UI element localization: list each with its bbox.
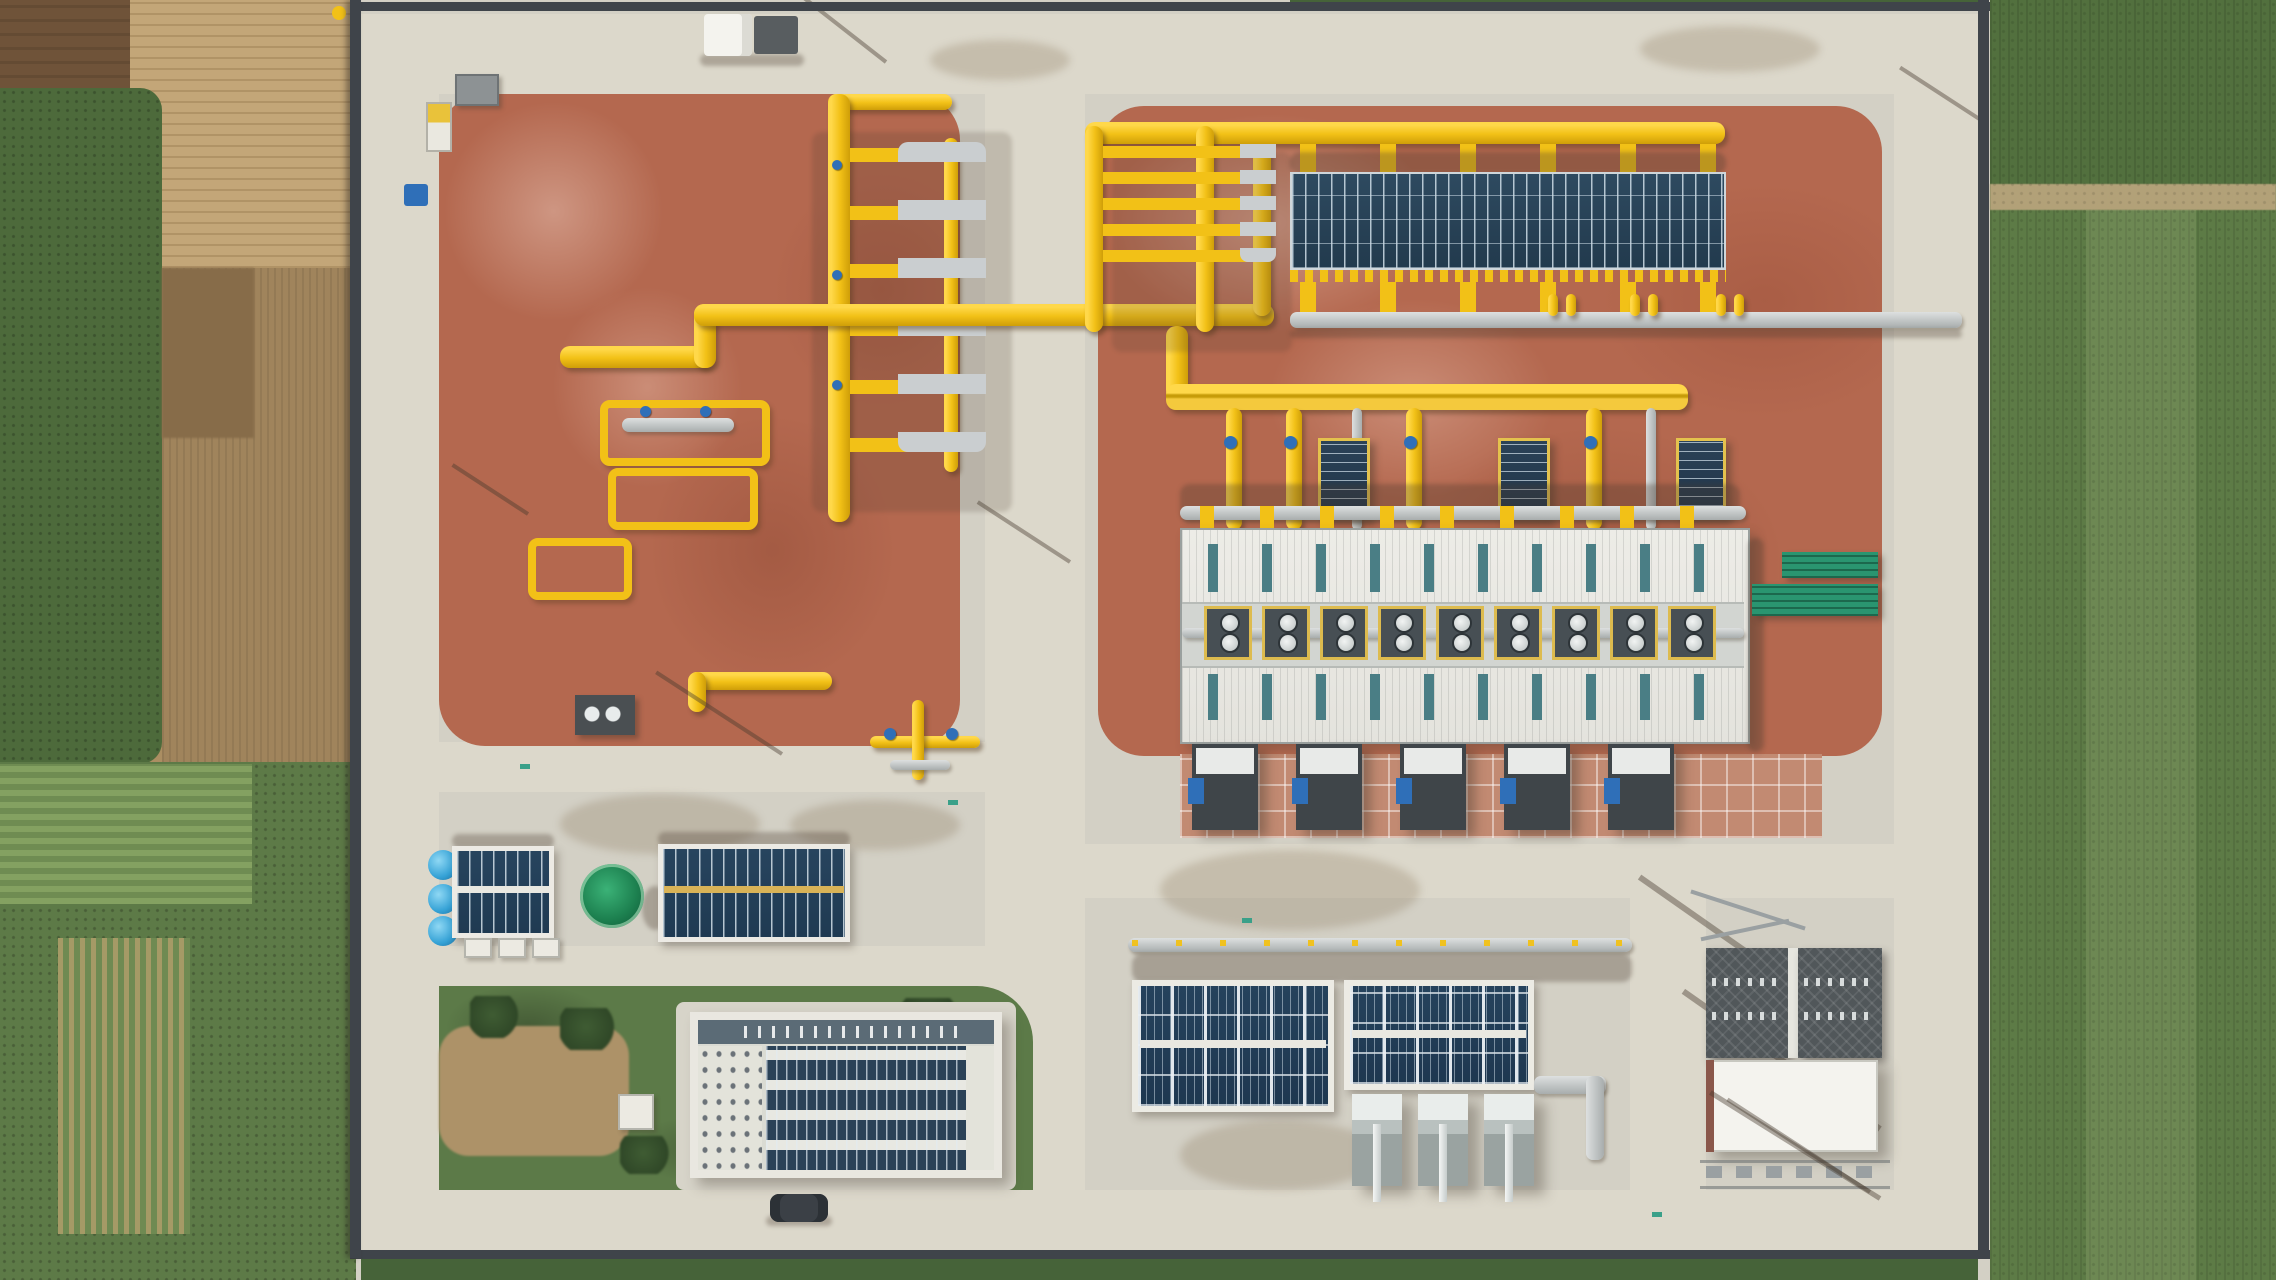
cooler-skid (1400, 744, 1466, 830)
valve (1584, 436, 1597, 449)
white-truck (704, 14, 752, 56)
crop-texture-overlay (1990, 0, 2276, 1280)
wall-south (350, 1250, 1990, 1259)
valve (946, 728, 958, 740)
duct-vertical (1586, 1076, 1604, 1160)
valve (832, 270, 842, 280)
roof-vent-unit (1320, 606, 1368, 660)
cooling-unit-row (1752, 584, 1878, 616)
solar-roof-building-long (658, 844, 850, 942)
ground-stain (1160, 850, 1420, 930)
parked-car (770, 1194, 828, 1222)
road-lower-vertical (1630, 898, 1706, 1190)
expansion-loop (1566, 294, 1576, 316)
compressor-unit (1352, 1094, 1402, 1186)
cooler-skid (1504, 744, 1570, 830)
bay-divider-wall (1788, 948, 1798, 1058)
tree (560, 1008, 618, 1050)
farmland-east (1990, 0, 2276, 1280)
expansion-loop (1548, 294, 1558, 316)
admin-roof-solar-rows (766, 1046, 966, 1170)
wall-east (1978, 0, 1989, 1258)
bushing-row (1804, 978, 1874, 986)
ground-stain (930, 40, 1070, 80)
pipe-skid-frame (528, 538, 632, 600)
wall-west (350, 0, 361, 1258)
site-container (426, 102, 452, 152)
roof-vent-unit (1494, 606, 1542, 660)
compressor-unit (1418, 1094, 1468, 1186)
solar-canopy (1290, 172, 1726, 270)
pipe-rack-valve-markers (1132, 940, 1628, 946)
road-east-perimeter (1894, 14, 1978, 1257)
equipment-cabinet (455, 74, 499, 106)
building-east-shadow (1748, 538, 1764, 752)
expansion-loop (1630, 294, 1640, 316)
valve (832, 160, 842, 170)
expansion-loop (1716, 294, 1726, 316)
roof-center-line (664, 886, 844, 893)
cooler-skid (1192, 744, 1258, 830)
manifold-west-separator-vessels (898, 142, 986, 452)
pipe-skid-vessel (622, 418, 734, 432)
pipe-skid-frame (608, 468, 758, 530)
skylight-row-south (1208, 674, 1708, 720)
collector-pipe-steel (1290, 312, 1962, 328)
transformer-bay (1706, 948, 1790, 1058)
small-shed (532, 938, 560, 958)
ground-stain (1180, 1120, 1380, 1190)
drain-marker (520, 764, 530, 769)
switchyard-bus (1700, 1160, 1890, 1163)
bushing-row (1712, 1012, 1782, 1020)
green-sphere-tank (580, 864, 644, 928)
trunk-pipe-west (560, 346, 712, 368)
row-crop-patch-light (0, 764, 252, 904)
switchgear (1856, 1166, 1872, 1178)
bushing-row (1804, 1012, 1874, 1020)
cooling-unit-row (1782, 552, 1878, 578)
admin-west-wing (698, 1046, 762, 1170)
bushing-row (1712, 978, 1782, 986)
roof-vent-unit (1668, 606, 1716, 660)
drain-marker (1242, 918, 1252, 923)
valve (640, 406, 651, 417)
switchgear (1706, 1166, 1722, 1178)
valve (1404, 436, 1417, 449)
valve (832, 380, 842, 390)
collector-pipe-shadow (1290, 330, 1962, 338)
farmland-west (0, 0, 356, 1280)
small-white-shed (618, 1094, 654, 1130)
canopy-north-shadow (1290, 152, 1726, 174)
green-crop-field-upper (0, 88, 162, 764)
road-between-buildings (439, 946, 1033, 988)
row-crop-patch-tan (58, 938, 190, 1234)
rooftop-sign (744, 1026, 958, 1038)
ground-stain (1640, 26, 1820, 72)
roof-vent-unit (1552, 606, 1600, 660)
canopy-edge-fins (1290, 270, 1726, 282)
pipe-skid-frame (600, 400, 770, 466)
roof-vent-unit (1262, 606, 1310, 660)
wet-soil-patch (162, 268, 254, 438)
admin-east-wing (966, 1046, 994, 1170)
rack-shadow-band (1132, 954, 1632, 982)
drain-marker (1652, 1212, 1662, 1217)
yellow-marker (332, 6, 346, 20)
tree (620, 1136, 672, 1174)
expansion-loop (1734, 294, 1744, 316)
switchgear (1736, 1166, 1752, 1178)
manifold-east-pipe-a (1085, 126, 1103, 332)
valve (1224, 436, 1237, 449)
control-building-edge (1706, 1060, 1714, 1152)
pipe-run (688, 672, 832, 690)
small-shed (464, 938, 492, 958)
tree (470, 996, 520, 1038)
drain-marker (948, 800, 958, 805)
distribution-header (1166, 384, 1688, 410)
hedge-south (361, 1259, 1978, 1280)
blue-dumpster (404, 184, 428, 206)
manifold-east-branch-pipes (1103, 136, 1261, 262)
aerial-photo-scene (0, 0, 2276, 1280)
roof-vent-unit (1378, 606, 1426, 660)
switchgear (1766, 1166, 1782, 1178)
compressor-unit (1484, 1094, 1534, 1186)
skylight-row-north (1208, 544, 1708, 592)
wall-north (350, 2, 1990, 11)
valve (884, 728, 896, 740)
roof-vent-unit (1610, 606, 1658, 660)
roof-walkway (457, 886, 549, 893)
valve (1284, 436, 1297, 449)
metering-cabinet-fans (583, 705, 623, 723)
cooler-skid (1608, 744, 1674, 830)
roof-walkway (1352, 1030, 1526, 1038)
roof-walkway (1140, 1040, 1326, 1048)
cooler-skid (1296, 744, 1362, 830)
roof-vent-unit (1436, 606, 1484, 660)
small-shed (498, 938, 526, 958)
roof-vent-unit (1204, 606, 1252, 660)
cargo-container (754, 16, 798, 54)
valve (700, 406, 711, 417)
expansion-loop (1648, 294, 1658, 316)
transformer-bay (1798, 948, 1882, 1058)
wheat-stubble-field (130, 0, 356, 268)
small-vessel (890, 760, 950, 770)
switchgear (1796, 1166, 1812, 1178)
manifold-east-vessels (1240, 132, 1276, 262)
